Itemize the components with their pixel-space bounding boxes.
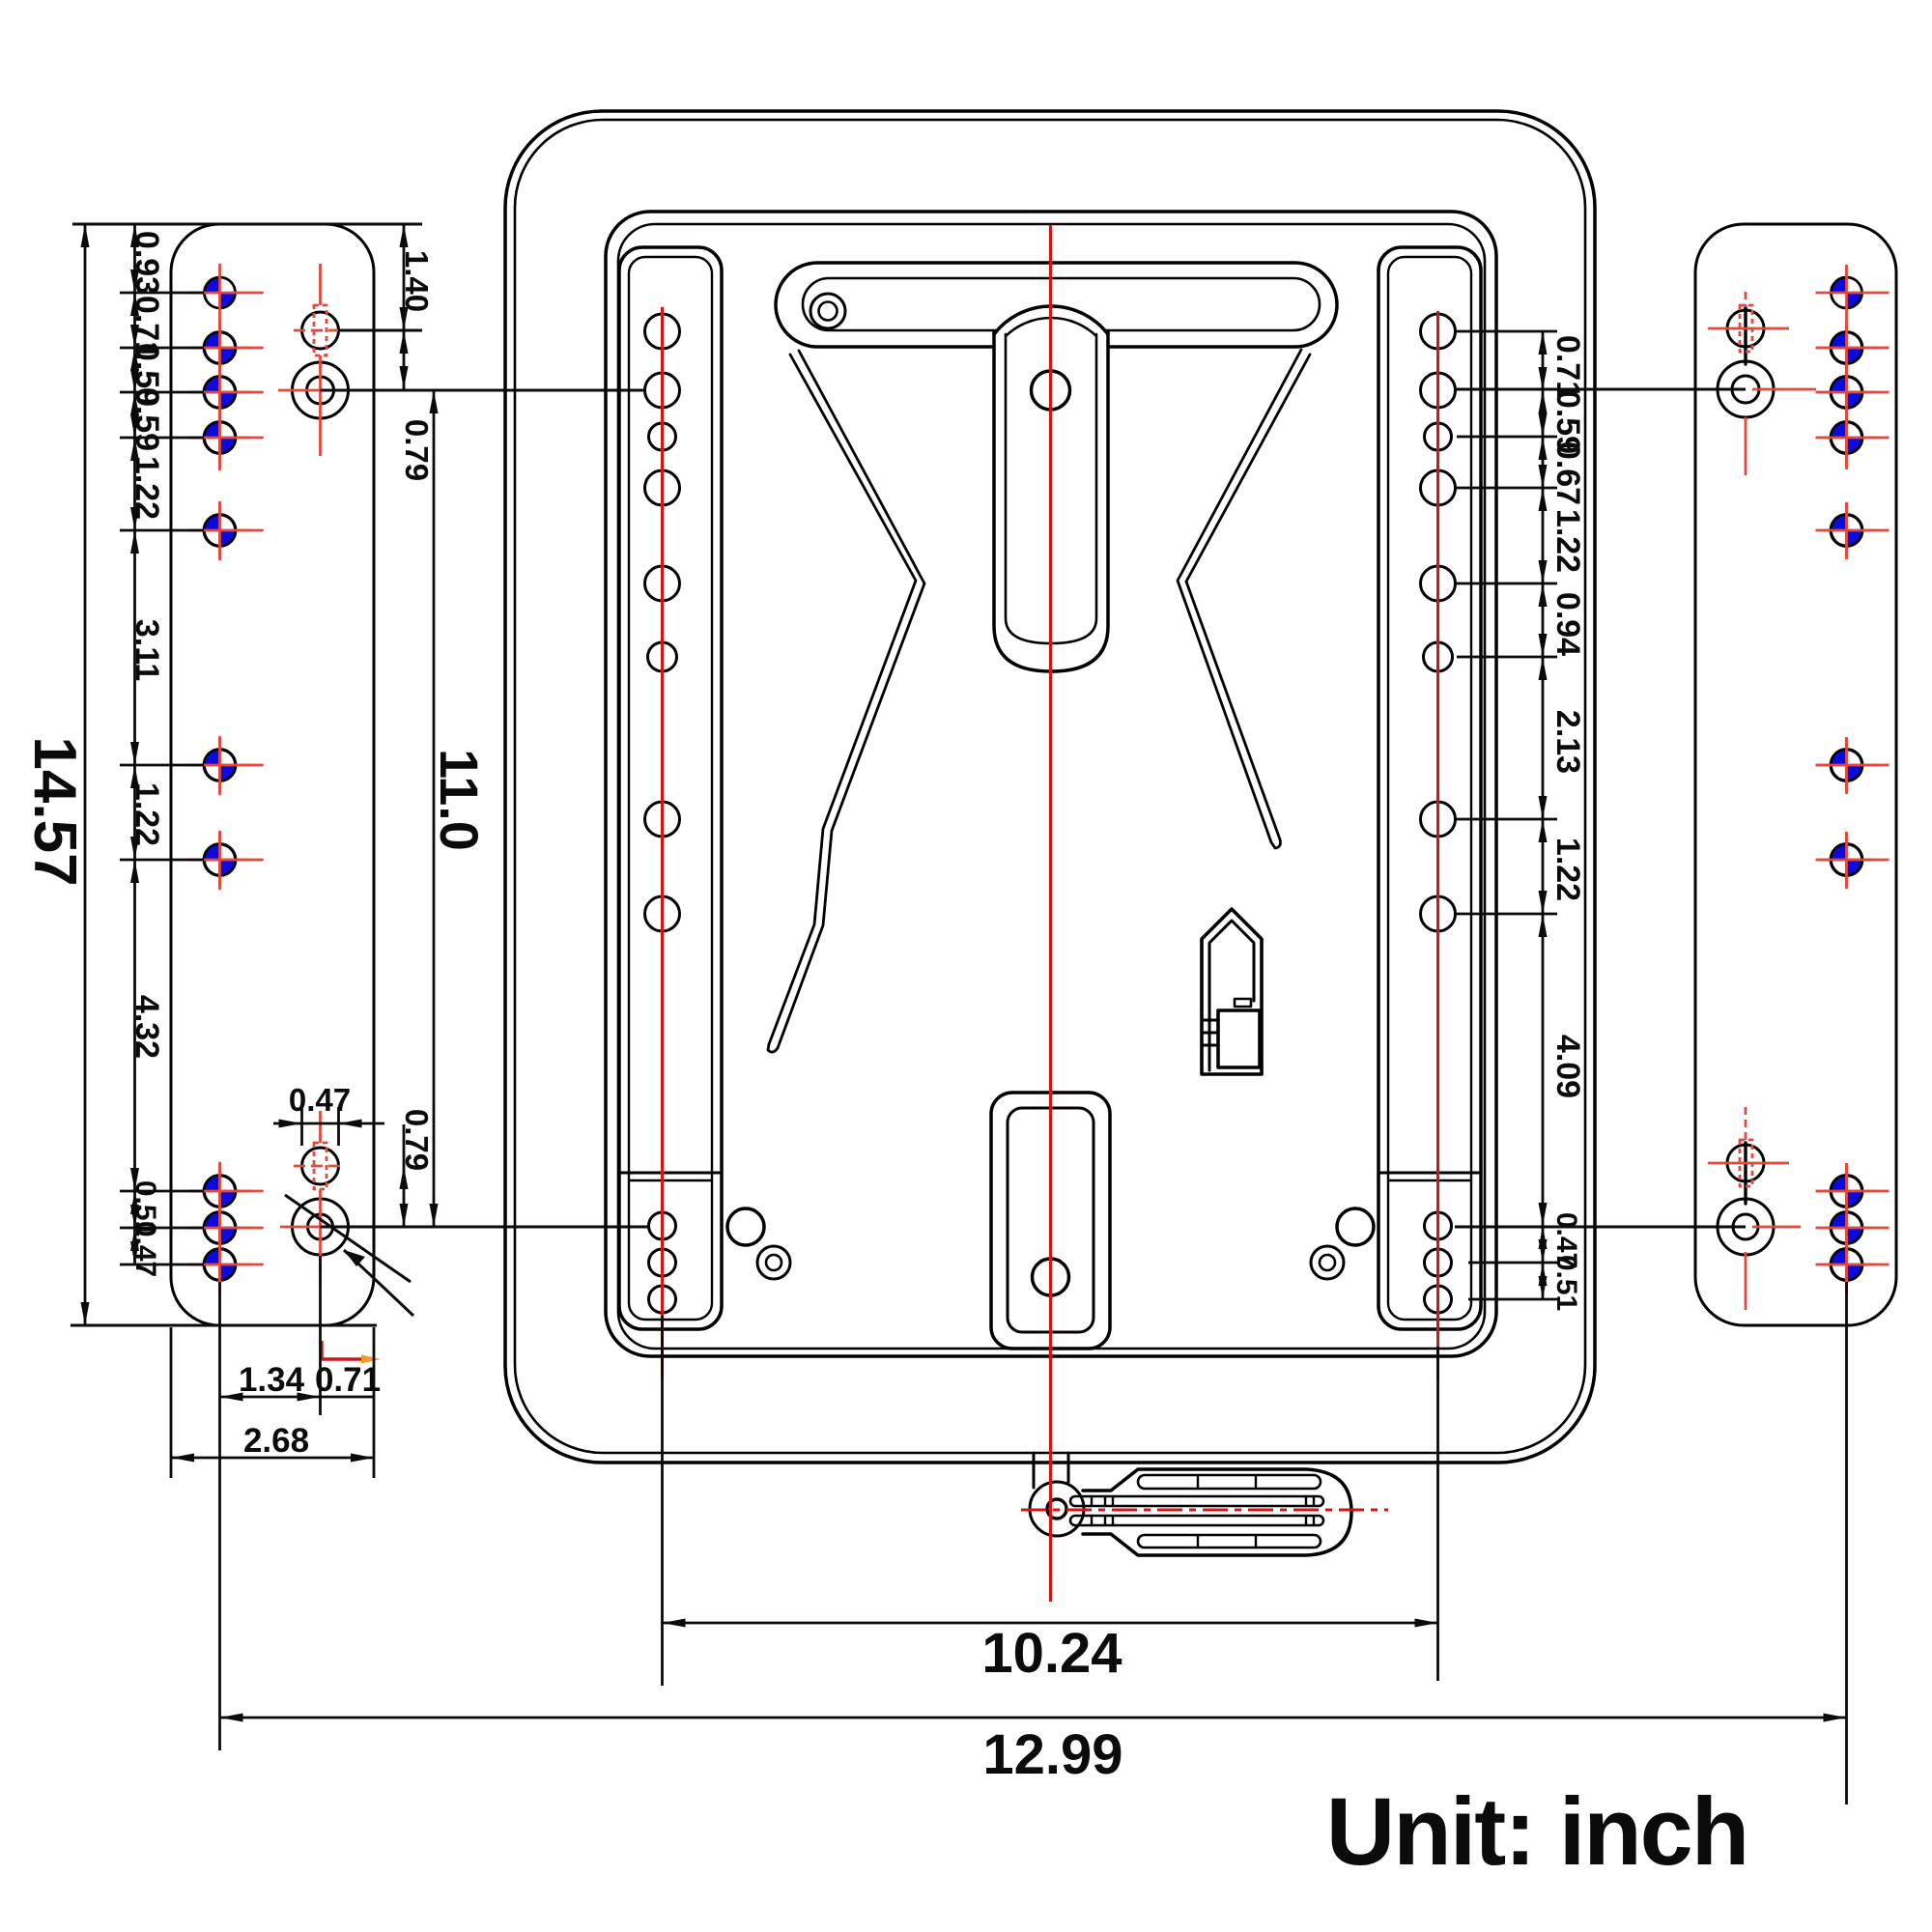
svg-text:1.34: 1.34 [239,1361,305,1399]
svg-text:0.47: 0.47 [289,1082,351,1118]
svg-text:0.94: 0.94 [1549,592,1586,656]
svg-text:Unit: inch: Unit: inch [1326,1777,1747,1885]
svg-text:1.22: 1.22 [1549,838,1586,901]
svg-text:4.32: 4.32 [128,995,165,1059]
svg-text:0.79: 0.79 [399,419,435,481]
svg-text:14.57: 14.57 [21,736,88,886]
svg-text:0.71: 0.71 [315,1361,381,1399]
svg-text:0.93: 0.93 [128,231,165,295]
svg-text:4.09: 4.09 [1549,1035,1586,1098]
svg-text:1.40: 1.40 [399,250,435,312]
svg-text:10.24: 10.24 [981,1622,1122,1685]
svg-text:3.11: 3.11 [128,619,165,681]
svg-text:2.13: 2.13 [1549,710,1586,774]
svg-text:0.51: 0.51 [1550,1255,1582,1311]
svg-text:1.22: 1.22 [128,456,165,520]
svg-text:1.22: 1.22 [1549,509,1586,573]
svg-text:0.79: 0.79 [399,1109,435,1171]
svg-text:1.22: 1.22 [128,782,165,846]
svg-text:11.0: 11.0 [429,749,490,851]
svg-text:0.47: 0.47 [129,1221,161,1277]
svg-text:0.67: 0.67 [1549,441,1586,505]
svg-text:2.68: 2.68 [243,1422,309,1460]
svg-text:12.99: 12.99 [982,1723,1122,1786]
svg-text:0.59: 0.59 [128,387,165,451]
